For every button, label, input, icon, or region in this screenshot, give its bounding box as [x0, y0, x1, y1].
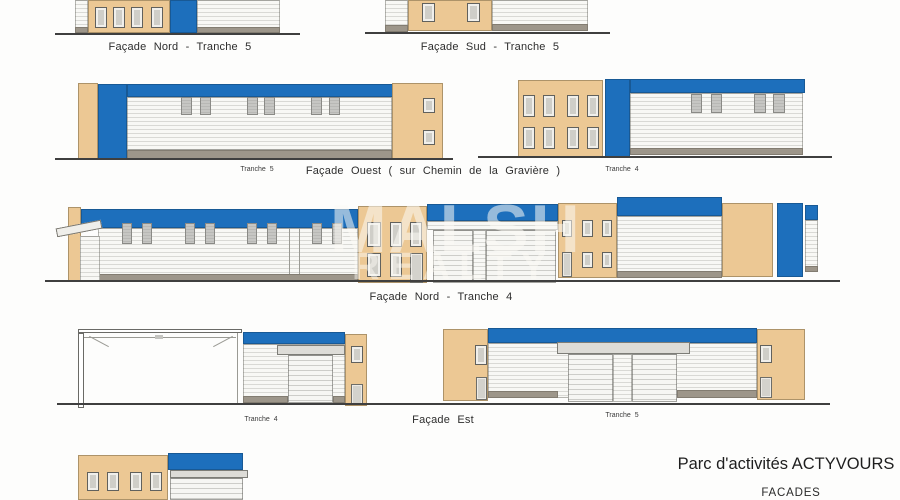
roller-door: [170, 478, 243, 500]
blue-parapet-band: [168, 453, 243, 470]
elevation-label: Façade Est: [412, 414, 474, 426]
project-title: Parc d'activités ACTYVOURS: [678, 455, 895, 474]
elevation-label: Façade Sud - Tranche 5: [421, 41, 559, 53]
tranche-tag: Tranche 4: [605, 166, 638, 173]
window: [107, 472, 119, 491]
sheet-title: FACADES: [761, 487, 820, 499]
elevation-label: Façade Nord - Tranche 4: [370, 291, 513, 303]
tranche-tag: Tranche 5: [240, 166, 273, 173]
tranche-tag: Tranche 5: [605, 412, 638, 419]
facade-drawing-sheet: Façade Nord - Tranche 5 Façade Sud - Tra…: [0, 0, 900, 500]
window: [87, 472, 99, 491]
tranche-tag: Tranche 4: [244, 416, 277, 423]
window: [150, 472, 162, 491]
elevation-label: Façade Nord - Tranche 5: [109, 41, 252, 53]
window: [130, 472, 142, 491]
elevation-label: Façade Ouest ( sur Chemin de la Gravière…: [306, 165, 560, 177]
fascia: [170, 470, 248, 478]
